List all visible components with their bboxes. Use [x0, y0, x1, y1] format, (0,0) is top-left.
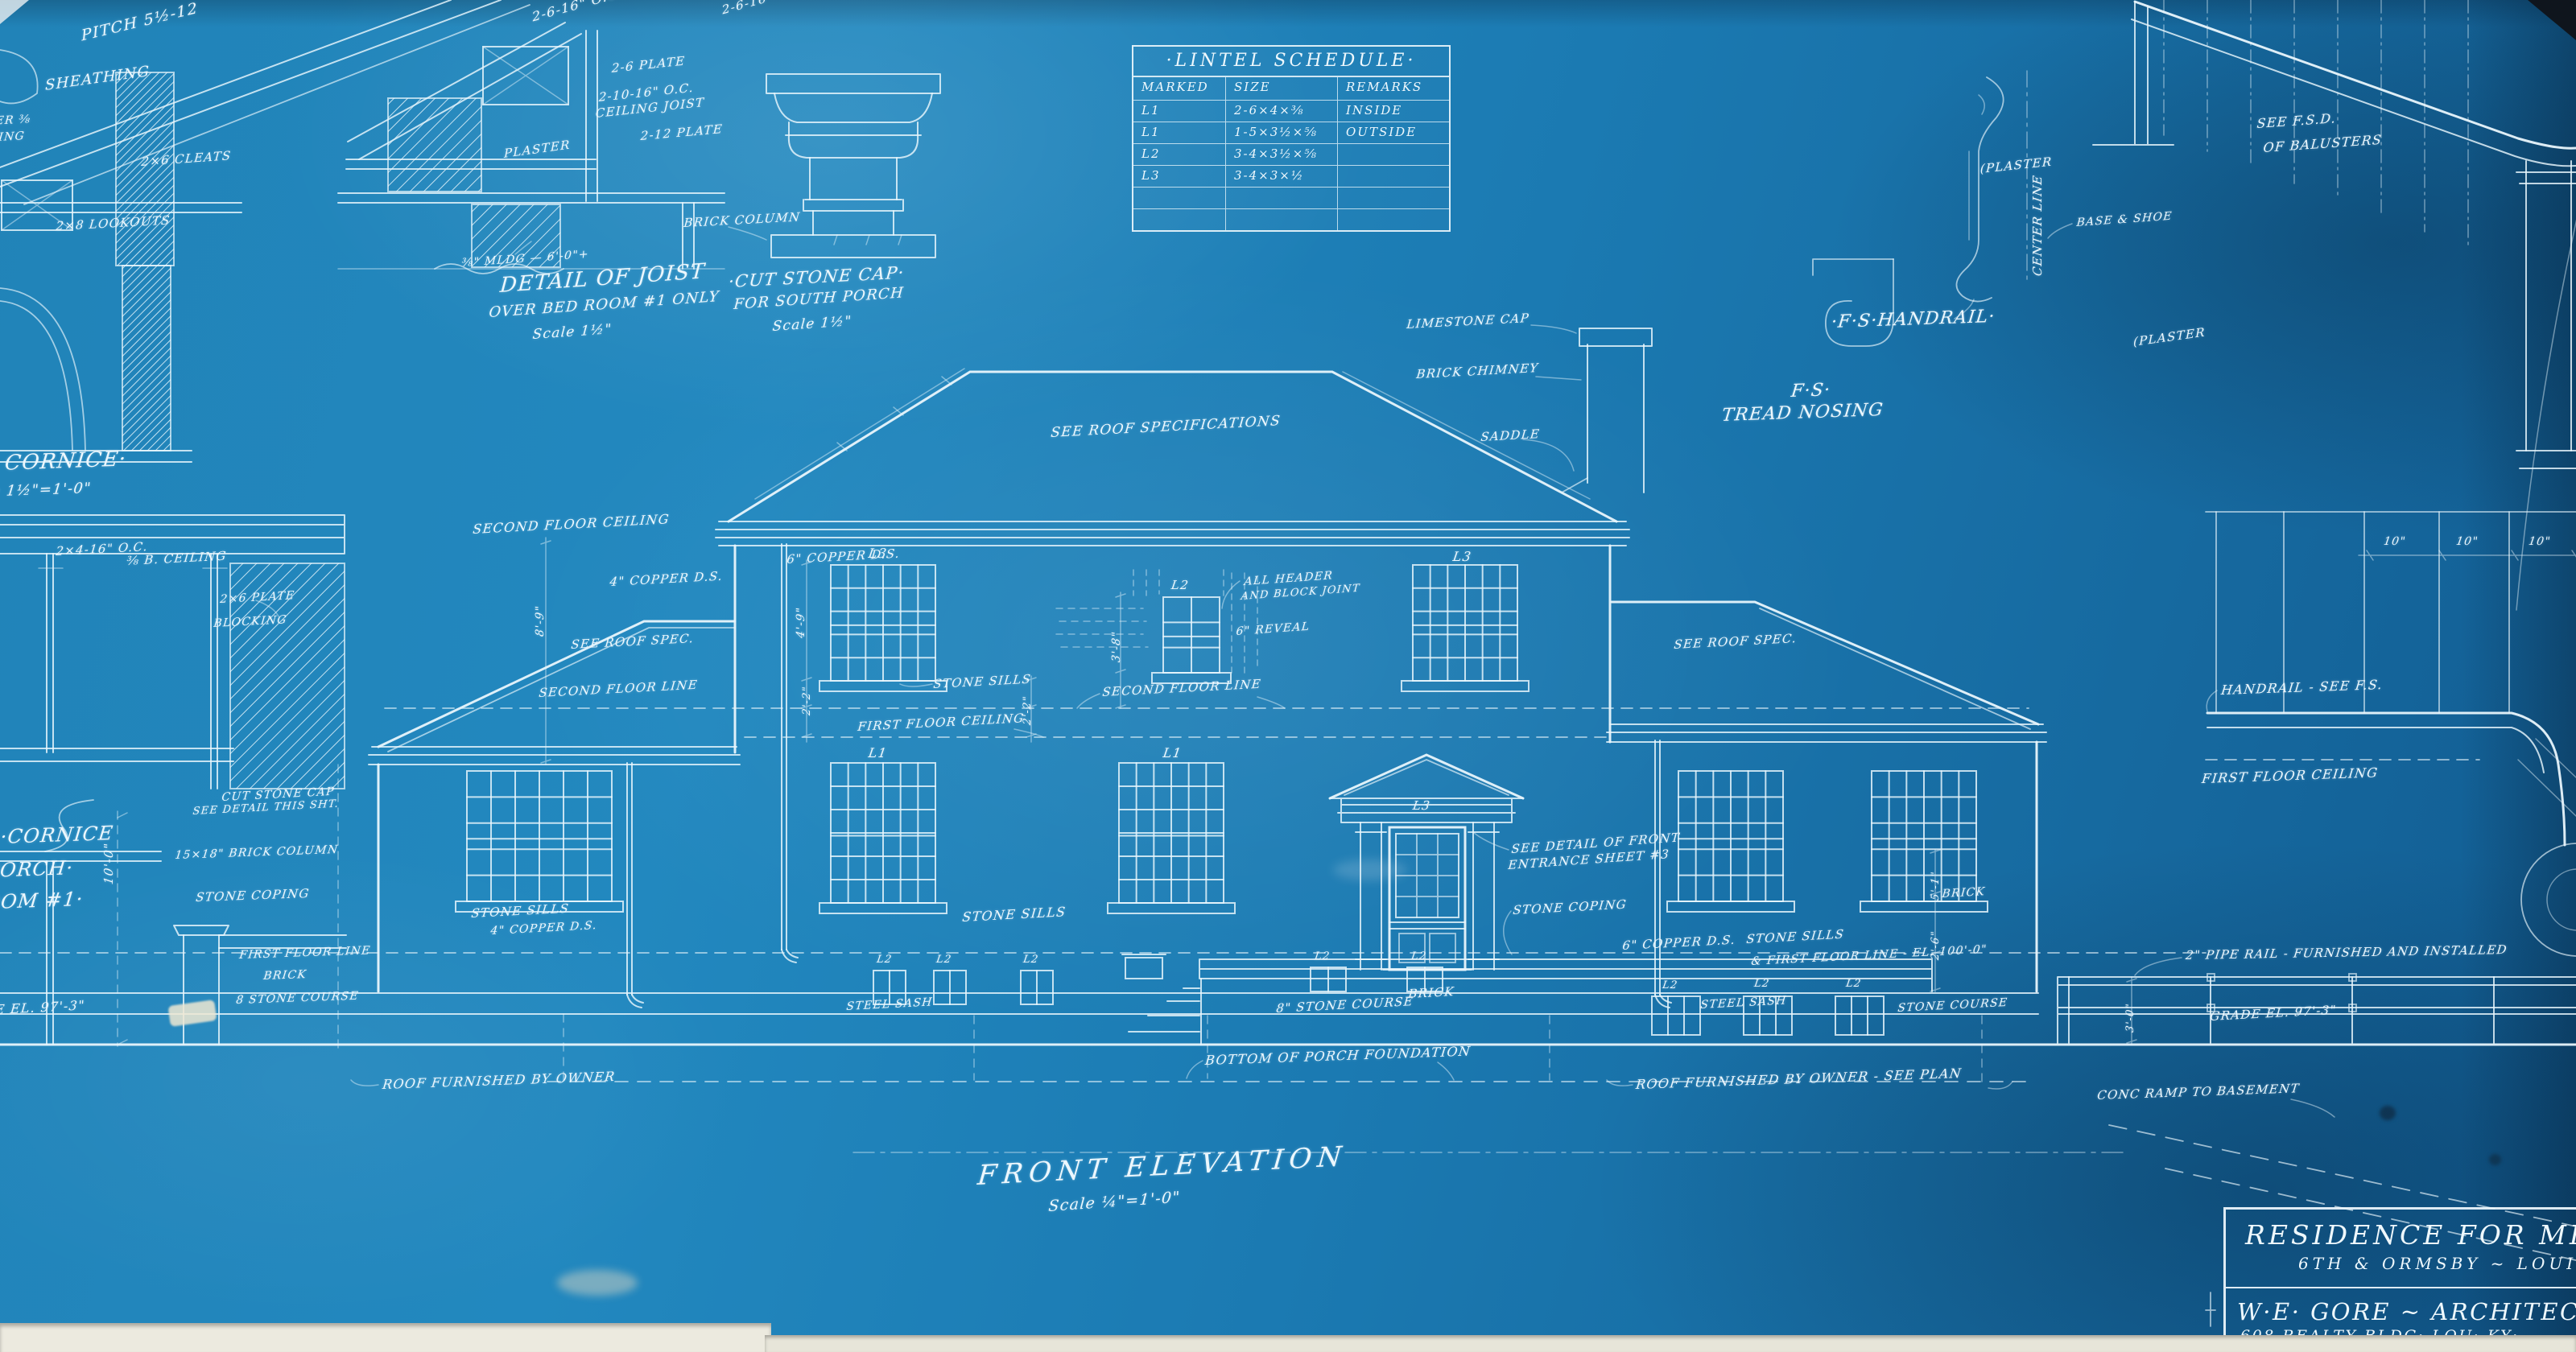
annotation-label: CEILING [0, 130, 26, 145]
annotation-label: L3 [1412, 800, 1431, 812]
annotation-label: 10" [2528, 536, 2552, 547]
annotation-label: L2 [1410, 951, 1427, 962]
annotation-label: 10" [2455, 536, 2479, 547]
dark-spot [2380, 1106, 2396, 1120]
house-elevation [0, 325, 2576, 1152]
annotation-label: L2 [935, 954, 952, 965]
annotation-label: 2'-2" [802, 686, 812, 716]
annotation-label: L1 [1162, 747, 1183, 760]
annotation-label: 2'-2" [1022, 695, 1033, 726]
annotation-label: PORCH· [0, 858, 74, 880]
title-block-project: RESIDENCE FOR MR· [2226, 1210, 2576, 1251]
lintel-cell [1338, 144, 1449, 165]
annotation-label: CENTER LINE [2032, 174, 2044, 277]
cut-stone-cap-detail [729, 74, 940, 258]
lintel-cell: 3-4×3½×⅝ [1226, 144, 1338, 165]
lintel-schedule-table: ·LINTEL SCHEDULE· MARKEDSIZEREMARKSL12-6… [1132, 45, 1451, 232]
lintel-cell [1226, 188, 1338, 208]
annotation-label: L2 [1170, 579, 1190, 591]
annotation-label: L2 [1845, 979, 1862, 989]
stair-details [1813, 0, 2576, 1326]
annotation-label: F·S· [1790, 381, 1832, 401]
annotation-label: ·CORNICE [0, 823, 114, 847]
lintel-header-cell: MARKED [1133, 77, 1226, 100]
annotation-label: 3'-8" [1111, 630, 1122, 663]
lintel-schedule-title: ·LINTEL SCHEDULE· [1133, 47, 1449, 77]
lintel-cell: 1-5×3½×⅝ [1226, 122, 1338, 143]
lintel-cell [1133, 188, 1226, 208]
lintel-cell [1338, 209, 1449, 230]
annotation-label: SADDLE [1480, 428, 1541, 443]
annotation-label: L2 [1314, 951, 1331, 962]
annotation-label: L3 [868, 547, 888, 560]
photo-mat-strip-left [0, 1323, 771, 1352]
lintel-cell: OUTSIDE [1338, 122, 1449, 143]
lintel-row [1133, 209, 1449, 230]
annotation-label: 8'-9" [535, 604, 546, 637]
annotation-label: 4'-9" [795, 606, 807, 639]
lintel-cell: L1 [1133, 101, 1226, 122]
lintel-cell: L1 [1133, 122, 1226, 143]
annotation-label: BRICK [263, 969, 308, 982]
annotation-label: 10" [2383, 536, 2407, 547]
lintel-header-cell: SIZE [1226, 77, 1338, 100]
annotation-label: L2 [1022, 954, 1039, 965]
photo-mat-strip-right [765, 1335, 2576, 1352]
annotation-label: L2 [1662, 980, 1678, 991]
lintel-cell: 3-4×3×½ [1226, 166, 1338, 187]
lintel-header-cell: REMARKS [1338, 77, 1449, 100]
lintel-row: L23-4×3½×⅝ [1133, 144, 1449, 166]
lintel-cell: L2 [1133, 144, 1226, 165]
lintel-cell [1338, 188, 1449, 208]
lintel-cell: INSIDE [1338, 101, 1449, 122]
annotation-label: 3'-0" [2125, 1003, 2136, 1033]
annotation-label: BRICK [1408, 986, 1455, 1000]
annotation-label: L3 [1452, 550, 1472, 563]
lintel-cell [1338, 166, 1449, 187]
lintel-cell: 2-6×4×⅜ [1226, 101, 1338, 122]
paper-smudge [557, 1270, 638, 1296]
annotation-label: L2 [876, 954, 893, 965]
lintel-cell: L3 [1133, 166, 1226, 187]
title-block-address: 6TH & ORMSBY ~ LOUISVILLE [2226, 1251, 2576, 1273]
lintel-row: L33-4×3×½ [1133, 166, 1449, 188]
lintel-row: L12-6×4×⅜INSIDE [1133, 101, 1449, 122]
blueprint-photo: path,line,rect,circle,polyline{fill:none… [0, 0, 2576, 1352]
annotation-label: 5'-1" [1930, 871, 1941, 901]
lintel-cell [1133, 209, 1226, 230]
lintel-row: L11-5×3½×⅝OUTSIDE [1133, 122, 1449, 144]
annotation-label: BRICK [1942, 886, 1986, 900]
annotation-label: ROOM #1· [0, 889, 85, 913]
title-block: RESIDENCE FOR MR· 6TH & ORMSBY ~ LOUISVI… [2223, 1207, 2576, 1352]
paper-smudge [1333, 859, 1407, 880]
annotation-label: 10'-0" [103, 842, 115, 885]
lintel-cell [1226, 209, 1338, 230]
lintel-row [1133, 188, 1449, 209]
title-block-architect: W·E· GORE ~ ARCHITECT· [2226, 1288, 2576, 1325]
annotation-label: L1 [868, 747, 888, 760]
dark-spot [2489, 1154, 2501, 1165]
annotation-label: 2'-6" [1930, 930, 1941, 961]
annotation-label: L2 [1753, 979, 1770, 989]
